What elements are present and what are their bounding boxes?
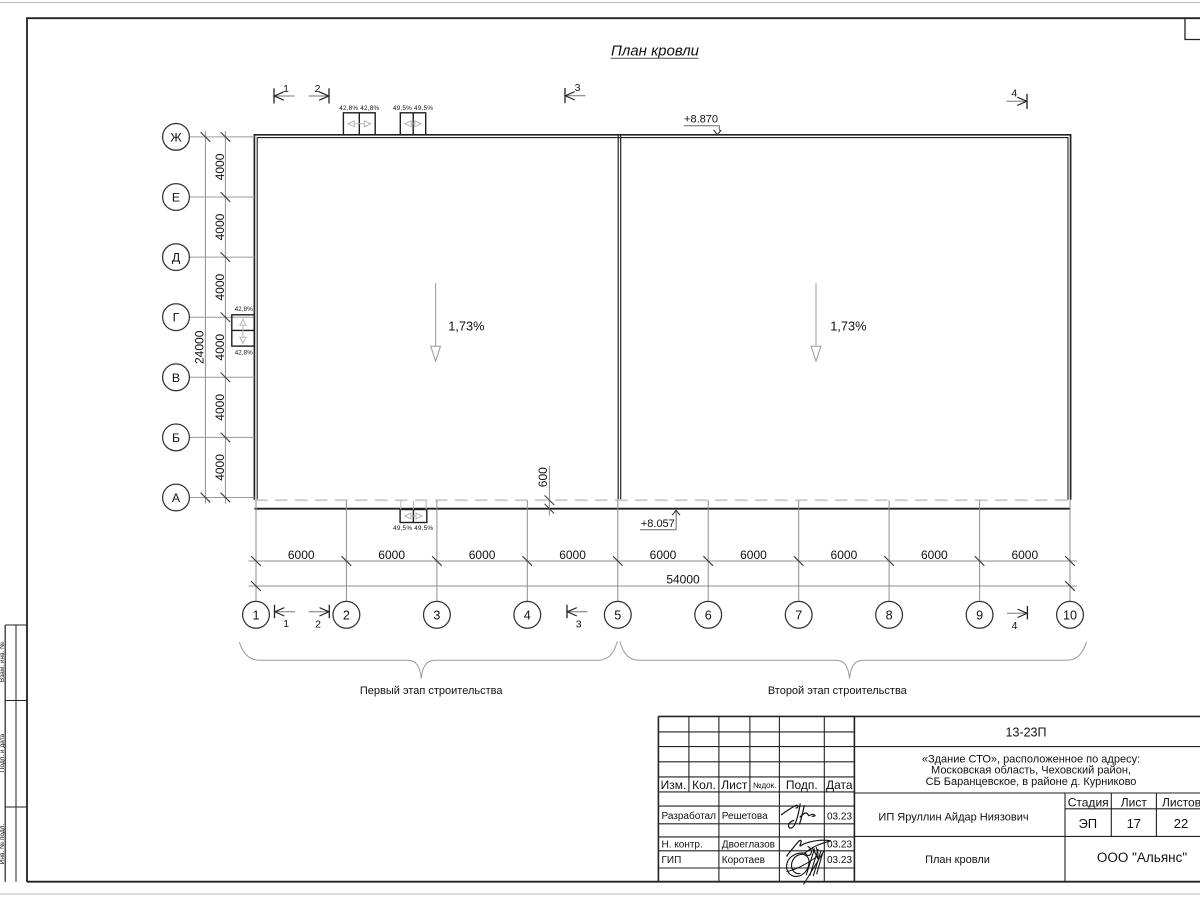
svg-text:Подп.: Подп. [786,778,818,792]
svg-text:2: 2 [315,83,321,95]
svg-text:1,73%: 1,73% [448,318,484,333]
svg-text:10: 10 [1063,609,1077,623]
svg-text:42,8%: 42,8% [235,306,253,313]
svg-text:42,8% 42,8%: 42,8% 42,8% [339,105,379,112]
svg-text:Подп. и дата: Подп. и дата [0,733,6,772]
svg-text:13-23П: 13-23П [1006,725,1047,739]
svg-text:2: 2 [343,609,350,623]
svg-text:В: В [172,371,180,385]
svg-text:Кол.: Кол. [692,778,716,792]
svg-text:План кровли: План кровли [611,43,700,60]
svg-text:22: 22 [1174,816,1188,831]
svg-text:6000: 6000 [740,548,767,562]
svg-text:Изм.: Изм. [661,778,687,792]
svg-text:42,8%: 42,8% [235,350,253,357]
svg-text:6000: 6000 [378,548,405,562]
svg-text:49,5% 49,5%: 49,5% 49,5% [393,525,433,532]
svg-text:Стадия: Стадия [1068,795,1109,809]
svg-text:СБ Баранцевское, в районе д. К: СБ Баранцевское, в районе д. Курниково [926,776,1137,788]
svg-text:1: 1 [283,618,289,630]
svg-text:Дата: Дата [826,778,853,792]
svg-text:Н. контр.: Н. контр. [662,839,703,850]
svg-text:6000: 6000 [921,548,948,562]
svg-text:6000: 6000 [831,548,858,562]
svg-text:А: А [172,491,181,505]
svg-text:ИП Яруллин Айдар Ниязович: ИП Яруллин Айдар Ниязович [878,811,1028,823]
svg-text:4000: 4000 [213,454,227,481]
svg-text:+8.057: +8.057 [641,518,675,530]
svg-text:Лист: Лист [721,778,748,792]
svg-text:Разработал: Разработал [662,810,717,822]
svg-text:План кровли: План кровли [925,854,990,866]
svg-text:6000: 6000 [650,548,677,562]
svg-text:ГИП: ГИП [662,855,682,866]
svg-text:600: 600 [536,467,550,487]
svg-text:Взам. инв. №: Взам. инв. № [0,642,6,682]
svg-text:Лист: Лист [1121,795,1148,809]
svg-text:54000: 54000 [666,573,700,587]
svg-text:+8.870: +8.870 [684,113,718,125]
svg-text:«Здание СТО», расположенное по: «Здание СТО», расположенное по адресу: [922,753,1140,765]
svg-text:4: 4 [1012,620,1018,632]
svg-text:3: 3 [575,82,581,94]
svg-text:7: 7 [795,609,802,623]
svg-text:ЭП: ЭП [1078,816,1097,831]
svg-text:1: 1 [283,83,289,95]
svg-text:49,5% 49,5%: 49,5% 49,5% [393,105,433,112]
svg-text:Первый этап строительства: Первый этап строительства [360,685,504,697]
svg-text:4000: 4000 [213,273,227,300]
svg-text:9: 9 [976,609,983,623]
svg-text:1: 1 [252,609,259,623]
svg-text:6000: 6000 [288,548,315,562]
svg-text:Московская область, Чеховский: Московская область, Чеховский район, [931,765,1131,777]
svg-text:1,73%: 1,73% [830,318,866,333]
svg-text:03.23: 03.23 [827,811,852,822]
svg-text:4000: 4000 [213,334,227,361]
svg-text:4: 4 [1011,88,1017,100]
svg-text:6000: 6000 [1011,548,1038,562]
svg-text:8: 8 [886,609,893,623]
svg-text:№док.: №док. [753,781,776,790]
svg-text:Д: Д [172,251,181,265]
svg-text:Е: Е [172,191,180,205]
svg-text:03.23: 03.23 [827,855,852,866]
svg-text:Второй этап строительства: Второй этап строительства [768,685,908,697]
svg-text:Г: Г [173,311,180,325]
svg-text:Ж: Ж [170,130,182,144]
svg-text:5: 5 [614,609,621,623]
svg-text:ООО "Альянс": ООО "Альянс" [1097,850,1187,865]
svg-text:24000: 24000 [192,330,206,364]
svg-text:6000: 6000 [469,548,496,562]
svg-text:17: 17 [1127,816,1141,831]
svg-text:Решетова: Решетова [722,811,768,822]
svg-text:Инв. № подл.: Инв. № подл. [0,824,6,865]
svg-text:4: 4 [524,609,531,623]
svg-text:Б: Б [172,431,180,445]
svg-text:6000: 6000 [559,548,586,562]
svg-text:Листов: Листов [1162,795,1200,809]
svg-text:Двоеглазов: Двоеглазов [722,839,775,850]
svg-text:6: 6 [705,609,712,623]
svg-text:4000: 4000 [213,153,227,180]
svg-text:3: 3 [576,618,582,630]
svg-text:4000: 4000 [213,213,227,240]
svg-text:3: 3 [433,609,440,623]
svg-text:2: 2 [315,618,321,630]
svg-text:4000: 4000 [213,394,227,421]
svg-text:Коротаев: Коротаев [722,855,765,866]
